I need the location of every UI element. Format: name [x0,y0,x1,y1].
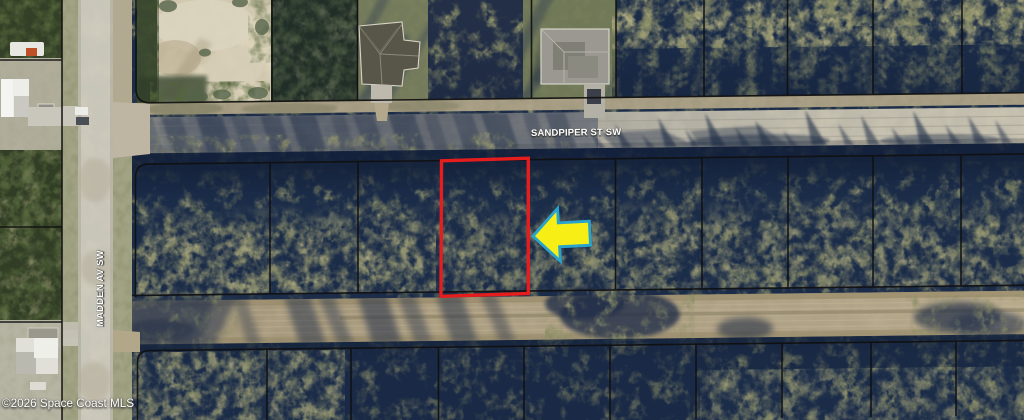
svg-text:MADDEN AV SW: MADDEN AV SW [95,250,106,327]
svg-text:SANDPIPER ST SW: SANDPIPER ST SW [531,127,622,139]
svg-text:©2026 Space Coast MLS: ©2026 Space Coast MLS [2,397,134,410]
